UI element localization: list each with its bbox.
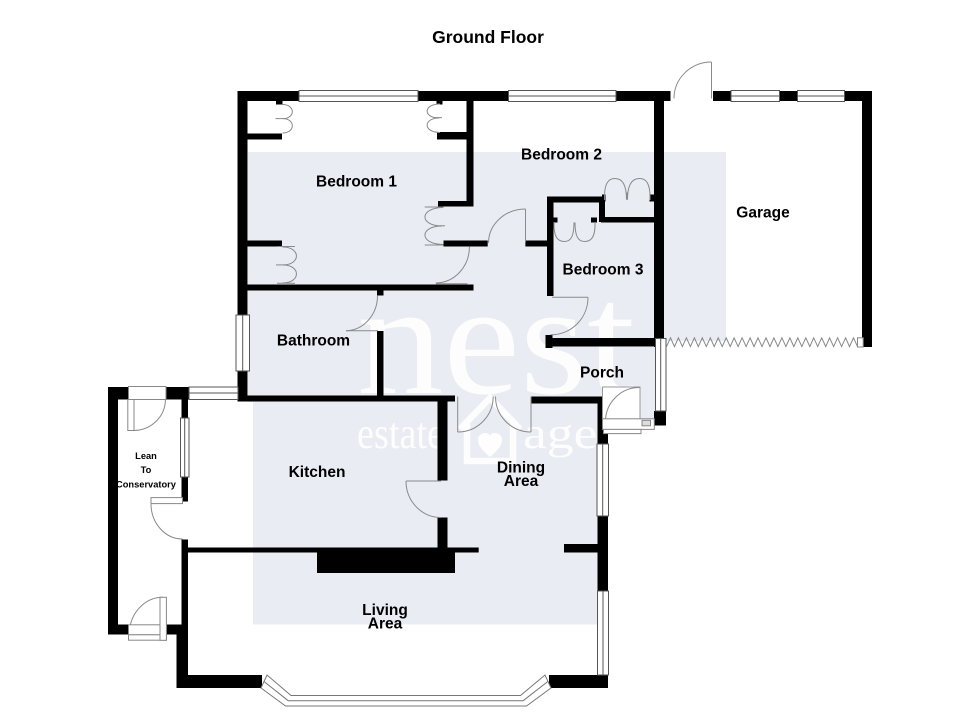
svg-text:Bedroom 3: Bedroom 3 [563,262,644,279]
svg-text:Ground Floor: Ground Floor [432,27,544,47]
svg-text:Bedroom 1: Bedroom 1 [316,174,397,191]
svg-text:estate: estate [357,409,444,458]
svg-text:Area: Area [504,473,539,490]
svg-text:Garage: Garage [736,205,790,222]
svg-text:Kitchen: Kitchen [289,464,346,481]
svg-text:Bathroom: Bathroom [277,333,350,350]
svg-text:Porch: Porch [580,365,624,382]
svg-text:Bedroom 2: Bedroom 2 [521,147,602,164]
svg-text:Lean: Lean [135,451,157,461]
svg-text:To: To [141,465,152,475]
svg-text:Conservatory: Conservatory [116,480,177,490]
svg-text:Area: Area [368,616,403,633]
